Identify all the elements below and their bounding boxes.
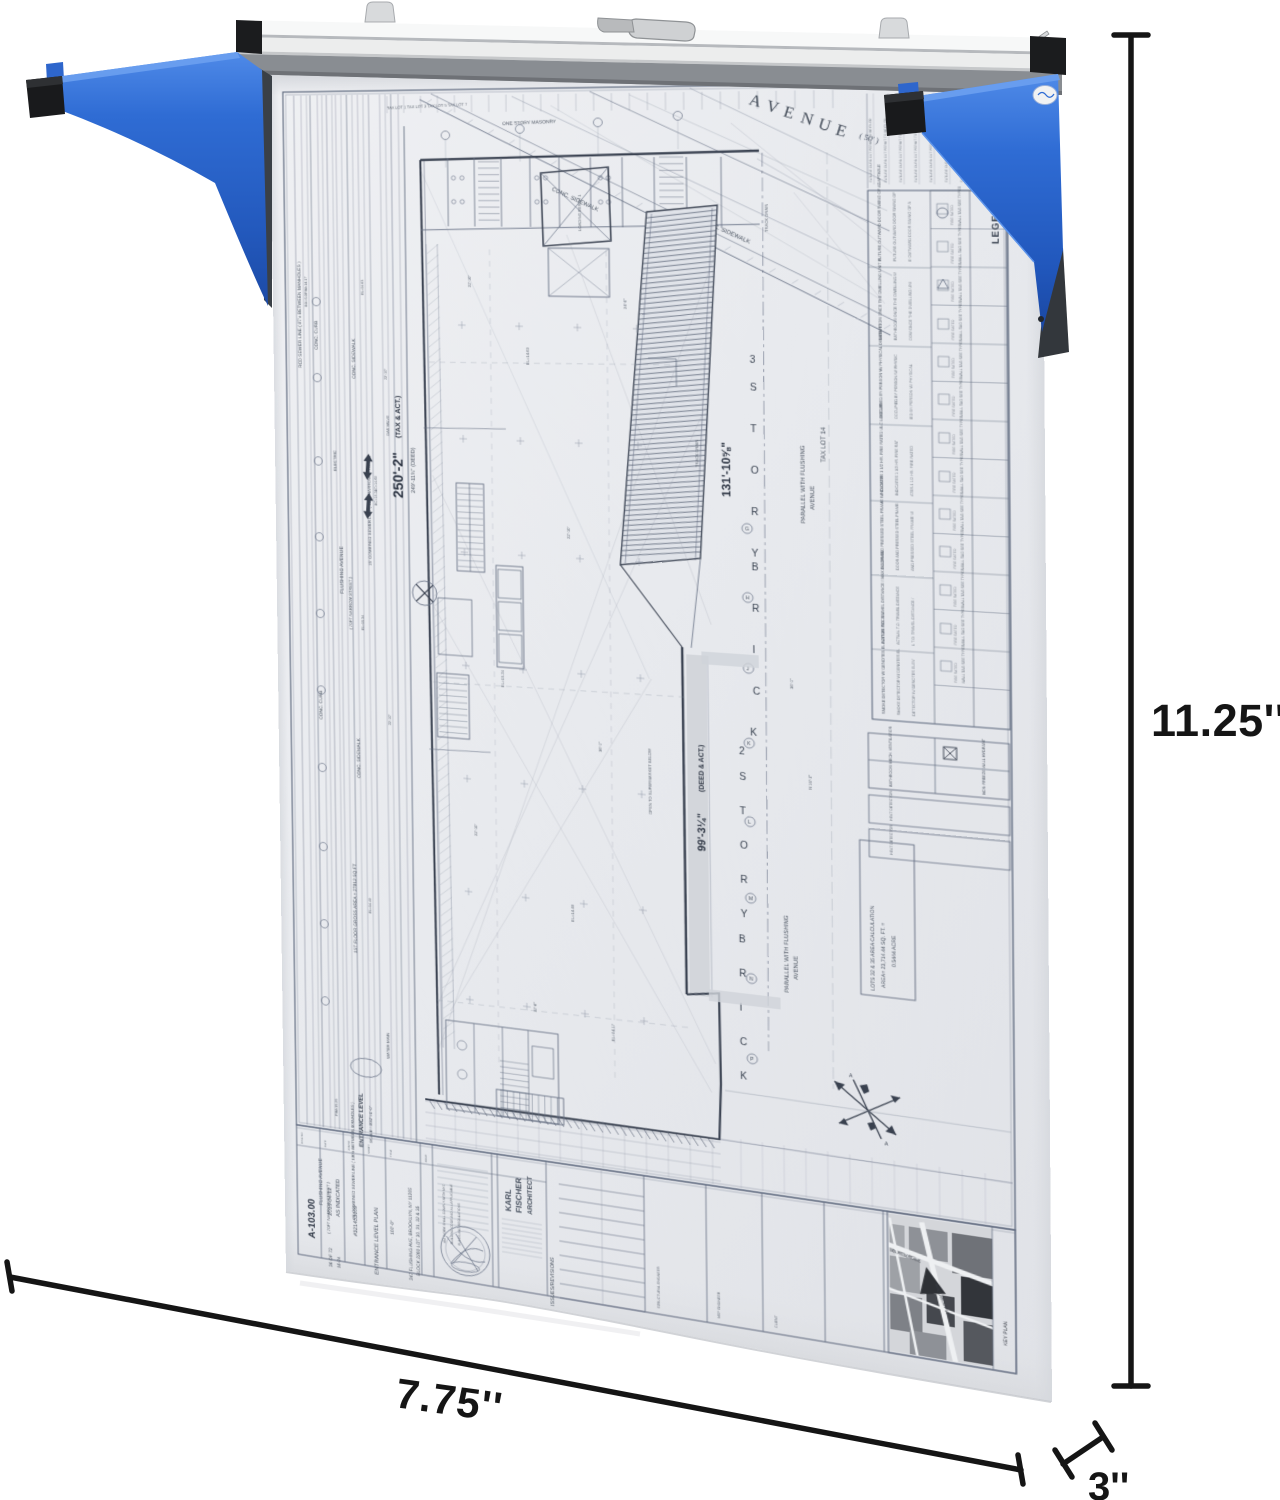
svg-text:11.25'': 11.25'' — [1151, 695, 1280, 746]
svg-text:3'': 3'' — [1088, 1465, 1129, 1500]
